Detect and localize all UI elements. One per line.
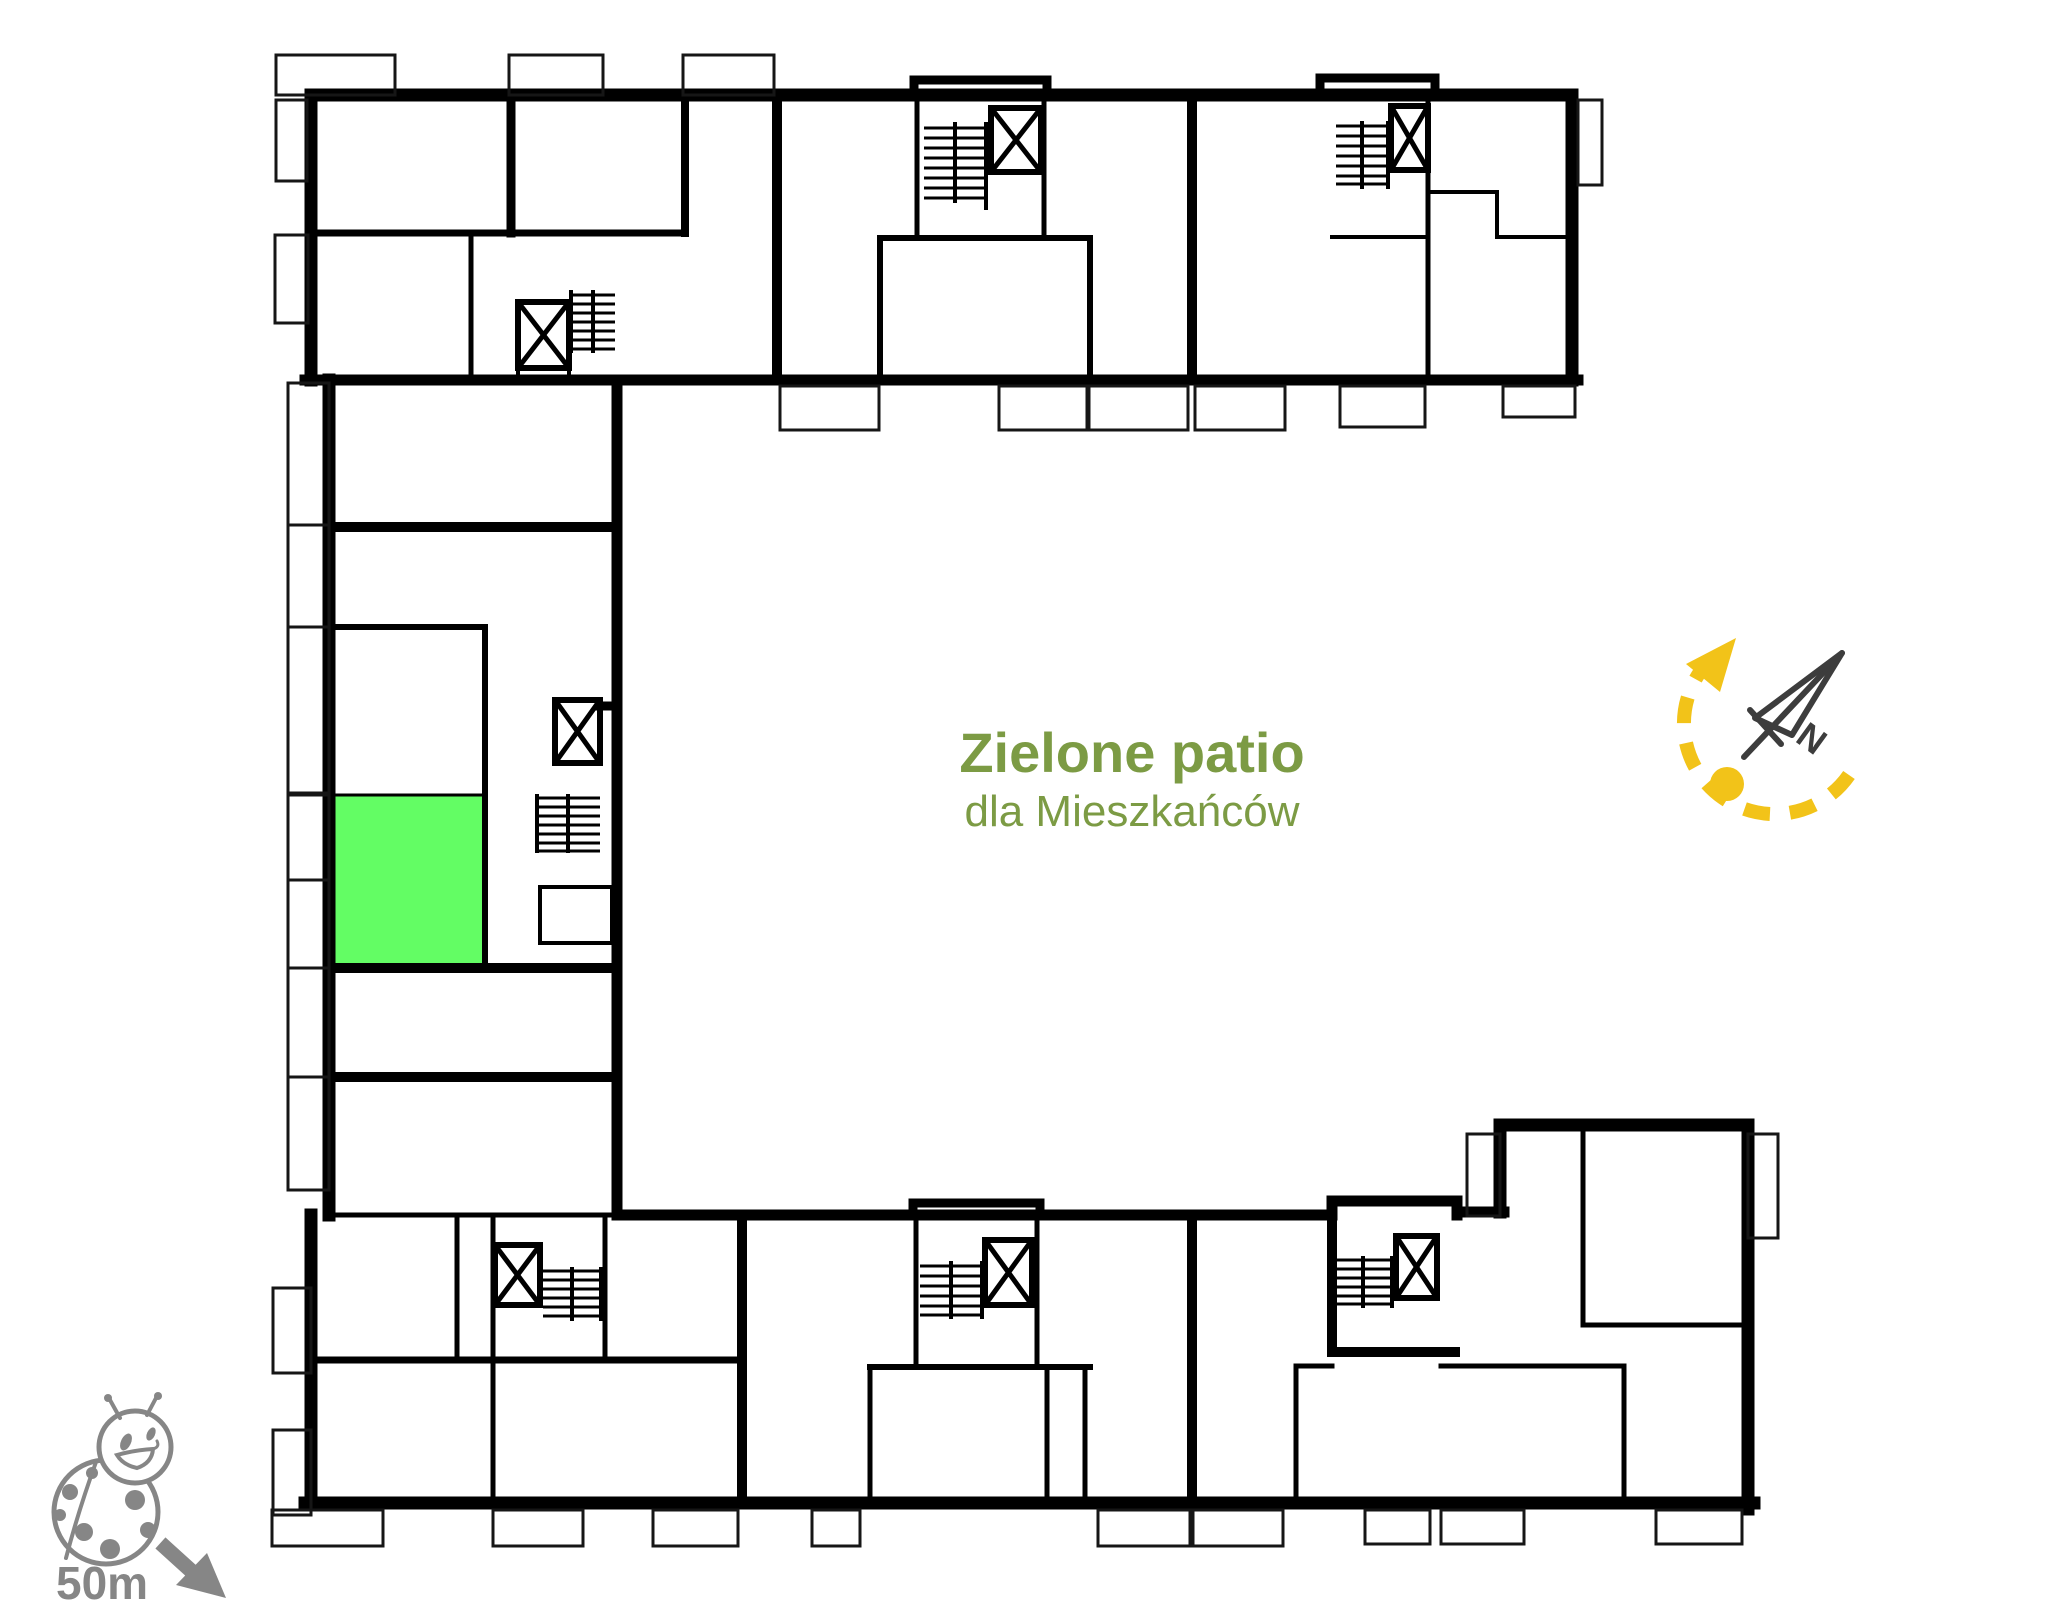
floor-plan-canvas: Zielone patio dla Mieszkańców N: [0, 0, 2048, 1623]
patio-label: Zielone patio dla Mieszkańców: [959, 721, 1304, 836]
patio-title: Zielone patio: [959, 721, 1304, 784]
patio-subtitle: dla Mieszkańców: [964, 787, 1299, 836]
route-origin-dot: [1710, 767, 1744, 801]
scale-distance-label: 50m: [56, 1557, 148, 1609]
highlighted-apartment[interactable]: [330, 795, 485, 966]
